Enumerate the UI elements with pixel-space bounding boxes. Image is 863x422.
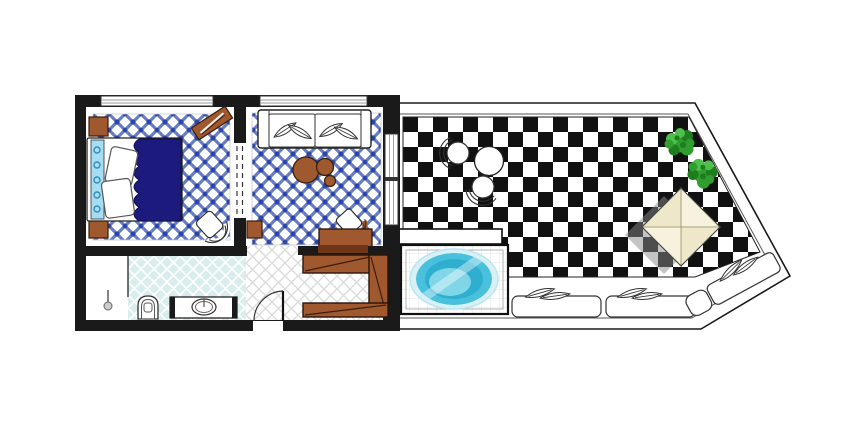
bed-cover [134,139,181,221]
wall-left [75,95,86,331]
hallway-floor [246,246,304,321]
desk-back-panel [318,245,368,253]
vanity-sink [170,297,237,318]
terrace [396,103,790,329]
coffee-table-large [293,157,319,183]
coffee-table-medium [317,159,334,176]
headboard [91,140,104,219]
window-bedroom [101,96,213,106]
floor-plan [0,0,863,422]
wall-partition-top [234,95,246,143]
pool-bench [396,229,502,244]
entry-door-gap [253,321,283,331]
plunge-pool [396,229,508,314]
toilet [138,296,158,319]
bed-pillow [101,178,135,219]
nightstand-top [89,117,108,136]
bistro-table [475,147,504,176]
shower-floor [84,254,128,321]
window-terrace [385,134,398,225]
sofa [258,110,371,148]
room-divider-opening [237,146,243,218]
coffee-table-small [325,176,336,187]
wall-bottom [75,320,400,331]
wall-bath-top [75,246,247,256]
cabinet [247,221,262,238]
window-living [260,96,367,106]
double-bed [87,138,182,221]
nightstand-bottom [89,219,108,238]
